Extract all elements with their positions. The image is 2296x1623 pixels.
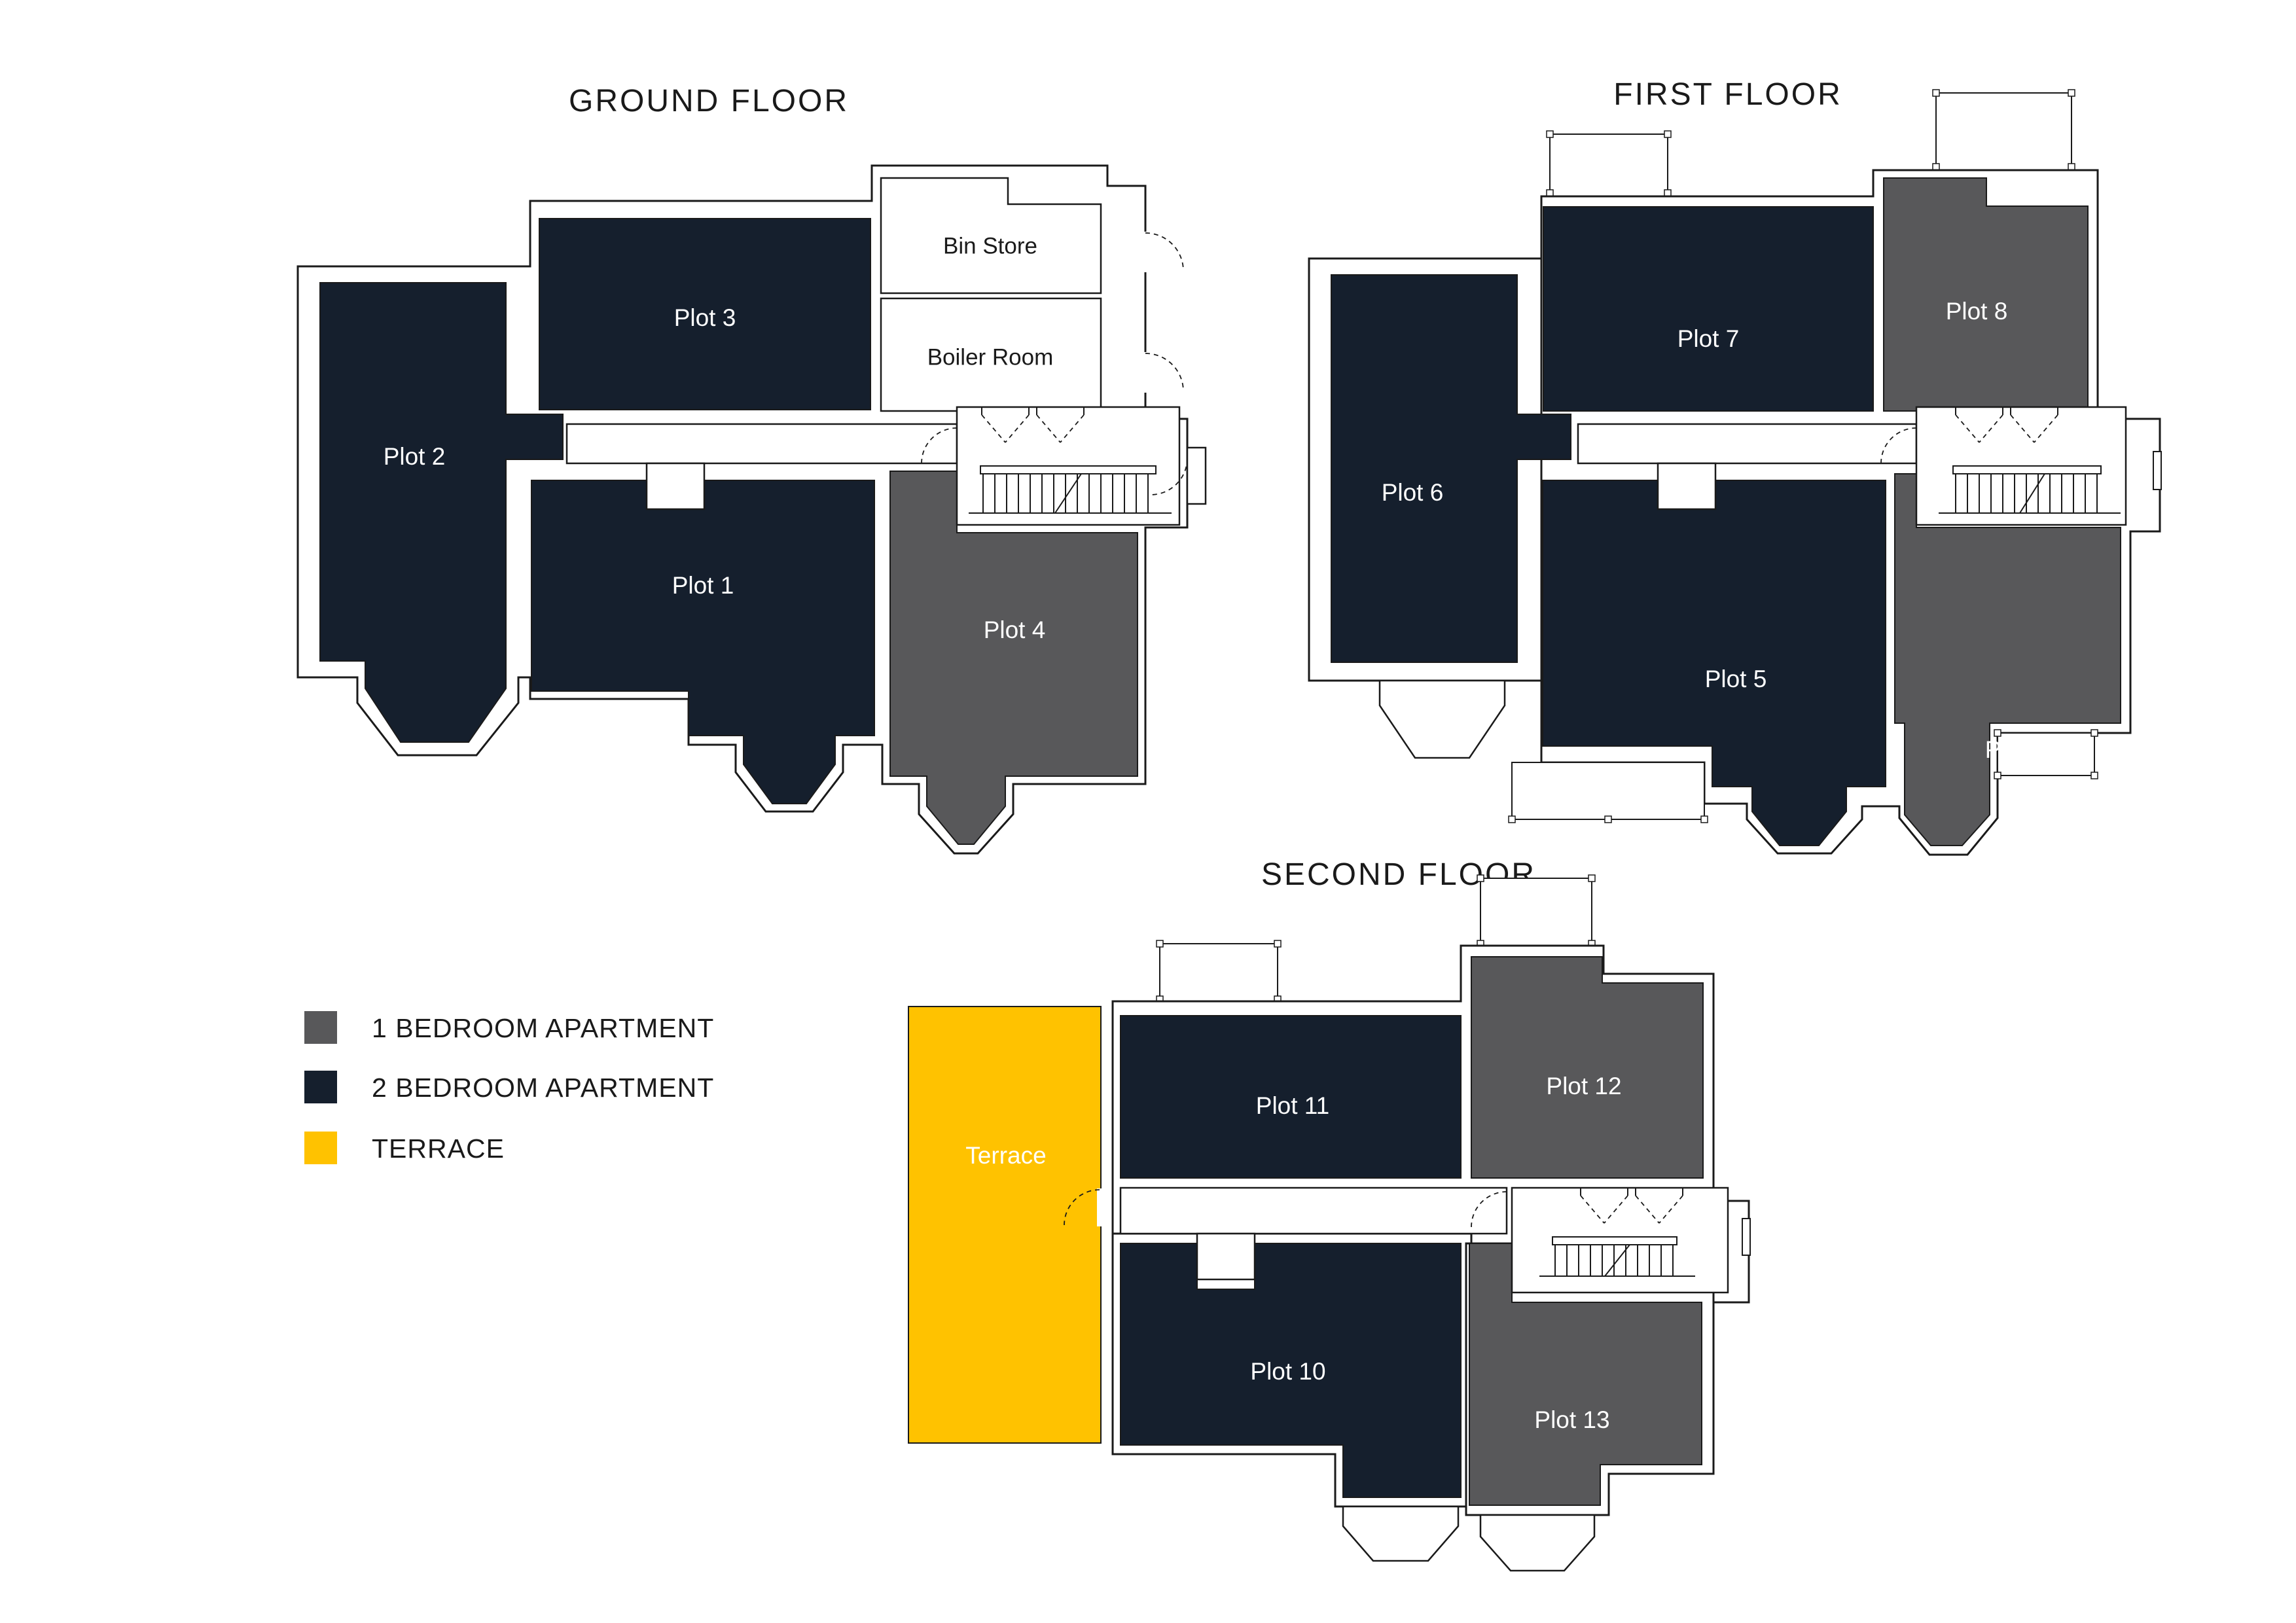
legend-swatch-one-bed <box>304 1011 337 1044</box>
second-floor-plot-11-label: Plot 11 <box>1256 1092 1329 1119</box>
ground-floor-corridor-notch <box>647 463 704 509</box>
first-floor-window-icon <box>2153 452 2161 490</box>
second-floor-corridor-notch <box>1197 1234 1255 1279</box>
first-floor-corridor <box>1578 424 1916 463</box>
second-floor-terrace-label: Terrace <box>965 1142 1046 1169</box>
first-floor-corridor-notch <box>1658 463 1715 509</box>
legend-label-two-bed: 2 BEDROOM APARTMENT <box>372 1073 714 1103</box>
floorplan-svg: GROUND FLOOR <box>0 0 2296 1623</box>
ground-floor-corridor <box>567 424 957 463</box>
legend-swatch-two-bed <box>304 1071 337 1103</box>
second-floor-plot-10-label: Plot 10 <box>1250 1358 1325 1385</box>
second-floor-plan: SECOND FLOOR <box>908 857 1750 1571</box>
first-floor-plot-8-label: Plot 8 <box>1946 298 2008 325</box>
second-floor-plot-13-label: Plot 13 <box>1534 1406 1609 1433</box>
legend-label-one-bed: 1 BEDROOM APARTMENT <box>372 1013 714 1043</box>
legend-label-terrace: TERRACE <box>372 1133 505 1164</box>
second-floor-terrace-area <box>908 1007 1101 1443</box>
floorplan-page: GROUND FLOOR <box>0 0 2296 1623</box>
first-floor-plot-9-room <box>1895 474 2121 846</box>
second-floor-balcony-rail-top-left <box>1157 940 1281 1003</box>
first-floor-plot6-bay <box>1380 681 1505 758</box>
legend-swatch-terrace <box>304 1132 337 1164</box>
first-floor-plot-7-label: Plot 7 <box>1677 325 1740 352</box>
first-floor-plot-8-room <box>1884 178 2088 411</box>
second-floor-plot-12-label: Plot 12 <box>1546 1073 1621 1099</box>
second-floor-window-icon <box>1742 1219 1750 1255</box>
first-floor-balcony-rail-top-right <box>1933 90 2075 170</box>
second-floor-corridor <box>1121 1188 1507 1234</box>
ground-floor-boiler-room-label: Boiler Room <box>927 344 1054 370</box>
second-floor-plot13-bay <box>1480 1515 1594 1571</box>
ground-floor-entrance-porch <box>1187 448 1206 504</box>
legend: 1 BEDROOM APARTMENT 2 BEDROOM APARTMENT … <box>304 1011 714 1164</box>
ground-floor-title: GROUND FLOOR <box>569 84 849 118</box>
ground-floor-plot-1-room <box>531 480 874 804</box>
second-floor-plot10-bay <box>1343 1507 1458 1561</box>
first-floor-plot-6-label: Plot 6 <box>1382 479 1444 506</box>
ground-floor-plan: GROUND FLOOR <box>298 84 1206 853</box>
second-floor-balcony-rail-top-right <box>1477 875 1595 947</box>
first-floor-plan: FIRST FLOOR <box>1309 77 2161 855</box>
ground-floor-plot-3-label: Plot 3 <box>674 304 736 331</box>
first-floor-title: FIRST FLOOR <box>1613 77 1842 112</box>
first-floor-plot-5-label: Plot 5 <box>1705 666 1767 692</box>
first-floor-plot-9-label: Plot 9 <box>1985 736 2047 763</box>
ground-floor-bin-store-label: Bin Store <box>943 233 1037 259</box>
ground-floor-plot-4-label: Plot 4 <box>984 616 1046 643</box>
first-floor-balcony-rail-top-left <box>1547 131 1671 196</box>
second-floor-plot-12-room <box>1471 957 1703 1178</box>
first-floor-balcony-rail-bottom-left <box>1509 762 1708 823</box>
first-floor-plot-7-room <box>1543 207 1873 411</box>
ground-floor-plot-1-label: Plot 1 <box>672 572 734 599</box>
ground-floor-plot-2-label: Plot 2 <box>384 443 446 470</box>
